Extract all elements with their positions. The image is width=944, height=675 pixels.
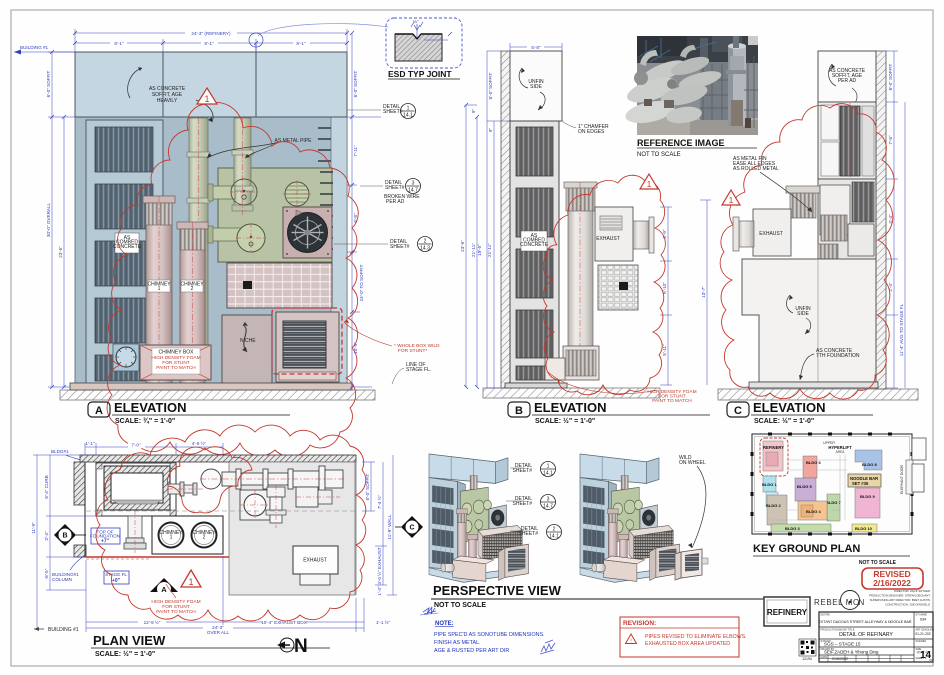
svg-text:6'-0" SOFFIT: 6'-0" SOFFIT	[488, 72, 493, 99]
svg-text:CONCRETE: CONCRETE	[520, 242, 549, 248]
svg-text:7TH FOUNDATION: 7TH FOUNDATION	[816, 353, 860, 359]
svg-text:14.7: 14.7	[408, 188, 418, 194]
svg-text:PRODUCTION DESIGNER: STEFAN DE: PRODUCTION DESIGNER: STEFAN DECHANT	[869, 594, 930, 598]
svg-text:B: B	[515, 405, 523, 417]
svg-text:AS METAL PIPE: AS METAL PIPE	[275, 138, 313, 144]
svg-text:A: A	[95, 405, 103, 417]
svg-text:BUILDING #1: BUILDING #1	[20, 45, 49, 50]
svg-text:3: 3	[547, 497, 550, 503]
svg-text:CONCRETE: CONCRETE	[113, 244, 142, 250]
svg-text:PAINT TO MATCH: PAINT TO MATCH	[156, 365, 196, 371]
svg-text:SGS – STAGE 15: SGS – STAGE 15	[824, 642, 861, 647]
svg-text:SUPERVISING ART DIRECTOR: BRET: SUPERVISING ART DIRECTOR: BRET AUSTIN	[870, 598, 930, 602]
svg-text:CHIMNEY BOX: CHIMNEY BOX	[159, 350, 195, 356]
svg-text:DETAIL OF REFINARY: DETAIL OF REFINARY	[839, 632, 893, 638]
svg-text:21'-11": 21'-11"	[471, 243, 476, 257]
svg-text:19'-5": 19'-5"	[477, 244, 482, 256]
svg-text:PER AD: PER AD	[838, 78, 857, 84]
svg-text:1'-4": 1'-4"	[377, 586, 382, 596]
svg-text:1: 1	[547, 464, 550, 470]
svg-text:ESD TYP JOINT: ESD TYP JOINT	[388, 69, 452, 79]
svg-text:ELEVATION: ELEVATION	[753, 400, 825, 415]
svg-text:PAINT TO MATCH: PAINT TO MATCH	[156, 609, 196, 615]
svg-text:24'-3" (REFINERY): 24'-3" (REFINERY)	[191, 31, 231, 36]
svg-text:11'-9" WALL: 11'-9" WALL	[387, 514, 392, 539]
svg-text:ELEVATION: ELEVATION	[534, 400, 606, 415]
svg-text:4'-6 ½": 4'-6 ½"	[192, 440, 207, 446]
svg-text:ELEVATION: ELEVATION	[114, 400, 186, 415]
svg-text:BLDG 10: BLDG 10	[855, 526, 873, 531]
svg-text:9": 9"	[471, 109, 476, 114]
svg-text:BLDG#1: BLDG#1	[51, 449, 69, 454]
svg-text:30'-0" OVERALL: 30'-0" OVERALL	[46, 202, 51, 237]
svg-text:KEY GROUND PLAN: KEY GROUND PLAN	[753, 543, 860, 555]
svg-text:⅛": ⅛"	[413, 19, 419, 24]
svg-text:ST NAME: ST NAME	[916, 613, 928, 617]
svg-text:PIPE SPEC'D AS SONOTUBE DIMENS: PIPE SPEC'D AS SONOTUBE DIMENSIONS.	[434, 632, 545, 638]
svg-text:EXHAUSTED BOX AREA UPDATED: EXHAUSTED BOX AREA UPDATED	[645, 641, 730, 647]
svg-text:1: 1	[204, 94, 209, 104]
svg-text:12'-9 ½": 12'-9 ½"	[144, 619, 161, 625]
svg-text:AGE & RUSTED PER ART DIR: AGE & RUSTED PER ART DIR	[434, 648, 509, 654]
svg-text:BUILDING #1: BUILDING #1	[48, 627, 79, 633]
svg-text:PRODUCTION/SHOW TITLE: PRODUCTION/SHOW TITLE	[821, 628, 855, 632]
svg-text:6'-0" SOFFIT: 6'-0" SOFFIT	[46, 70, 51, 97]
svg-text:1'-1": 1'-1"	[85, 441, 95, 446]
svg-text:BLDG 6: BLDG 6	[806, 460, 821, 465]
svg-text:1: 1	[647, 179, 652, 189]
svg-text:SCALE: ½" = 1'-0": SCALE: ½" = 1'-0"	[95, 650, 155, 658]
svg-text:SET/RE: SET/RE	[821, 613, 831, 617]
svg-text:6'-0" SOFFIT: 6'-0" SOFFIT	[353, 70, 358, 97]
svg-text:SEIF.ZADEH & Yihong Ding: SEIF.ZADEH & Yihong Ding	[824, 650, 879, 655]
svg-text:01-21-202: 01-21-202	[915, 632, 931, 636]
svg-text:14.1: 14.1	[403, 113, 413, 119]
svg-text:SCALE: ½" = 1'-0": SCALE: ½" = 1'-0"	[754, 417, 814, 425]
svg-text:11'-9": 11'-9"	[31, 522, 36, 534]
svg-text:1: 1	[729, 195, 734, 205]
svg-text:NOTE:: NOTE:	[435, 621, 454, 627]
svg-text:ON EDGES: ON EDGES	[578, 129, 605, 135]
svg-text:1: 1	[188, 577, 193, 587]
svg-text:7'-8": 7'-8"	[888, 135, 893, 145]
svg-text:AS ROLLED METAL: AS ROLLED METAL	[733, 166, 779, 172]
svg-text:8'-1": 8'-1"	[114, 41, 124, 46]
svg-text:SHEET#: SHEET#	[383, 109, 403, 115]
svg-text:21'-11": 21'-11"	[487, 243, 492, 257]
svg-text:EXHAUST: EXHAUST	[759, 231, 783, 237]
svg-text:PIPES REVISED TO ELIMINATE ELB: PIPES REVISED TO ELIMINATE ELBOWS.	[645, 634, 746, 640]
svg-text:SHEET#: SHEET#	[519, 531, 539, 537]
svg-text:REFERENCE IMAGE: REFERENCE IMAGE	[637, 138, 725, 148]
svg-text:7'-11": 7'-11"	[353, 145, 358, 157]
svg-text:3'-0 ½" EXHAUST: 3'-0 ½" EXHAUST	[376, 547, 382, 584]
svg-text:N: N	[294, 636, 308, 657]
svg-text:BLDG 2: BLDG 2	[766, 503, 781, 508]
svg-text:NOT TO SCALE: NOT TO SCALE	[637, 152, 681, 158]
svg-text:EXT/INT DAGOUS STREET ALLEYWAY: EXT/INT DAGOUS STREET ALLEYWAY & NOODLE …	[818, 620, 911, 624]
svg-text:ART DEADLINE: ART DEADLINE	[916, 628, 935, 632]
svg-text:ON WHEEL: ON WHEEL	[679, 460, 706, 466]
svg-text:N: N	[859, 598, 865, 607]
svg-text:23'-5": 23'-5"	[58, 246, 63, 258]
svg-text:SCALE: ½" = 1'-0": SCALE: ½" = 1'-0"	[535, 417, 595, 425]
svg-text:SIDE: SIDE	[530, 84, 542, 90]
svg-text:BLDG 7: BLDG 7	[826, 500, 841, 505]
svg-text:PERSPECTIVE VIEW: PERSPECTIVE VIEW	[433, 583, 562, 598]
svg-text:SHEET#: SHEET#	[513, 468, 533, 474]
svg-text:BLDG 9: BLDG 9	[860, 494, 875, 499]
svg-text:12194: 12194	[802, 657, 812, 661]
svg-text:2: 2	[553, 527, 556, 533]
svg-text:1: 1	[158, 286, 161, 292]
svg-text:HEAVILY: HEAVILY	[157, 98, 178, 104]
svg-text:+0": +0"	[112, 578, 121, 584]
svg-text:FOR STUNT*: FOR STUNT*	[398, 348, 427, 354]
svg-text:PLAN VIEW: PLAN VIEW	[93, 633, 166, 648]
svg-text:11'-4" AVG TO STAGE FL: 11'-4" AVG TO STAGE FL	[899, 303, 904, 356]
svg-text:SCENES: SCENES	[916, 639, 927, 643]
svg-text:BLDG 5: BLDG 5	[797, 484, 812, 489]
svg-text:EXHAUST: EXHAUST	[596, 236, 620, 242]
svg-text:STAGE FL.: STAGE FL.	[406, 367, 431, 373]
svg-text:-8'-5": -8'-5"	[44, 568, 49, 579]
svg-text:NICHE: NICHE	[240, 338, 256, 344]
svg-text:24'-0" TO SOFFIT: 24'-0" TO SOFFIT	[359, 264, 364, 301]
svg-text:2/16/2022: 2/16/2022	[873, 578, 911, 588]
svg-text:14.1: 14.1	[549, 534, 559, 540]
svg-text:1: 1	[407, 106, 410, 112]
svg-text:BLDG 8: BLDG 8	[862, 462, 877, 467]
svg-text:OVER ALL: OVER ALL	[207, 630, 230, 635]
svg-text:5'-8": 5'-8"	[531, 45, 541, 50]
svg-text:PAINT TO MATCH: PAINT TO MATCH	[652, 398, 692, 404]
svg-text:2/16/2022: 2/16/2022	[832, 657, 848, 661]
svg-text:3'-4": 3'-4"	[44, 531, 49, 541]
svg-text:B: B	[62, 533, 67, 540]
svg-text:8'-1": 8'-1"	[204, 41, 214, 46]
svg-text:8'-4" CURB: 8'-4" CURB	[44, 475, 49, 498]
svg-text:FINISH AS METAL.: FINISH AS METAL.	[434, 640, 481, 646]
svg-text:CONSTRUCTION: JOE DIANGELO: CONSTRUCTION: JOE DIANGELO	[885, 603, 931, 607]
svg-text:AREA: AREA	[836, 450, 846, 454]
svg-text:REFINERY: REFINERY	[763, 445, 784, 450]
svg-text:9": 9"	[488, 128, 493, 133]
svg-text:REVISION:: REVISION:	[623, 620, 656, 627]
svg-text:2: 2	[191, 286, 194, 292]
svg-text:BLDG 1: BLDG 1	[762, 482, 777, 487]
svg-text:SHEET#: SHEET#	[390, 244, 410, 250]
svg-text:A: A	[161, 585, 167, 594]
svg-text:5'-11": 5'-11"	[662, 344, 667, 356]
svg-text:REFINERY: REFINERY	[767, 608, 808, 617]
svg-text:REBEL MO: REBEL MO	[814, 598, 860, 607]
svg-text:2: 2	[203, 535, 206, 541]
svg-text:COLUMN: COLUMN	[52, 577, 72, 582]
svg-text:SET #35: SET #35	[852, 481, 869, 486]
svg-text:NOT TO SCALE: NOT TO SCALE	[859, 560, 897, 566]
svg-text:BLDG 4: BLDG 4	[806, 509, 821, 514]
svg-text:1'-1 ½": 1'-1 ½"	[376, 619, 391, 625]
svg-text:SCALE: ¾" = 1'-0": SCALE: ¾" = 1'-0"	[115, 417, 175, 425]
svg-text:6'-0" SOFFIT: 6'-0" SOFFIT	[888, 63, 893, 90]
svg-text:ELEPHANT DOOR: ELEPHANT DOOR	[900, 464, 904, 494]
svg-text:14.3: 14.3	[420, 246, 430, 252]
svg-text:8'-1": 8'-1"	[296, 41, 306, 46]
svg-text:C: C	[409, 525, 414, 532]
svg-text:SIDE: SIDE	[797, 311, 809, 317]
svg-text:EXHAUST: EXHAUST	[303, 558, 327, 564]
svg-text:DIRECTOR: ZACK SNYDER: DIRECTOR: ZACK SNYDER	[894, 589, 930, 593]
svg-text:+7": +7"	[101, 539, 110, 545]
svg-text:13'-7": 13'-7"	[701, 286, 706, 298]
svg-text:14.1: 14.1	[543, 471, 553, 477]
svg-text:2: 2	[424, 239, 427, 245]
svg-text:1: 1	[170, 535, 173, 541]
svg-text:NOT TO SCALE: NOT TO SCALE	[434, 602, 486, 609]
svg-text:SHEET#: SHEET#	[513, 501, 533, 507]
svg-text:PER AD: PER AD	[386, 199, 405, 205]
svg-text:3: 3	[412, 181, 415, 187]
svg-text:C: C	[734, 405, 742, 417]
svg-text:14.7: 14.7	[543, 504, 553, 510]
svg-text:7'-4 ½": 7'-4 ½"	[376, 495, 382, 510]
svg-text:034: 034	[920, 618, 926, 622]
svg-text:7'-0": 7'-0"	[131, 443, 141, 448]
svg-text:BLDG 3: BLDG 3	[785, 526, 800, 531]
svg-text:OF: OF	[929, 658, 933, 662]
svg-text:23'-5": 23'-5"	[460, 240, 465, 252]
svg-text:SHEET#: SHEET#	[385, 185, 405, 191]
